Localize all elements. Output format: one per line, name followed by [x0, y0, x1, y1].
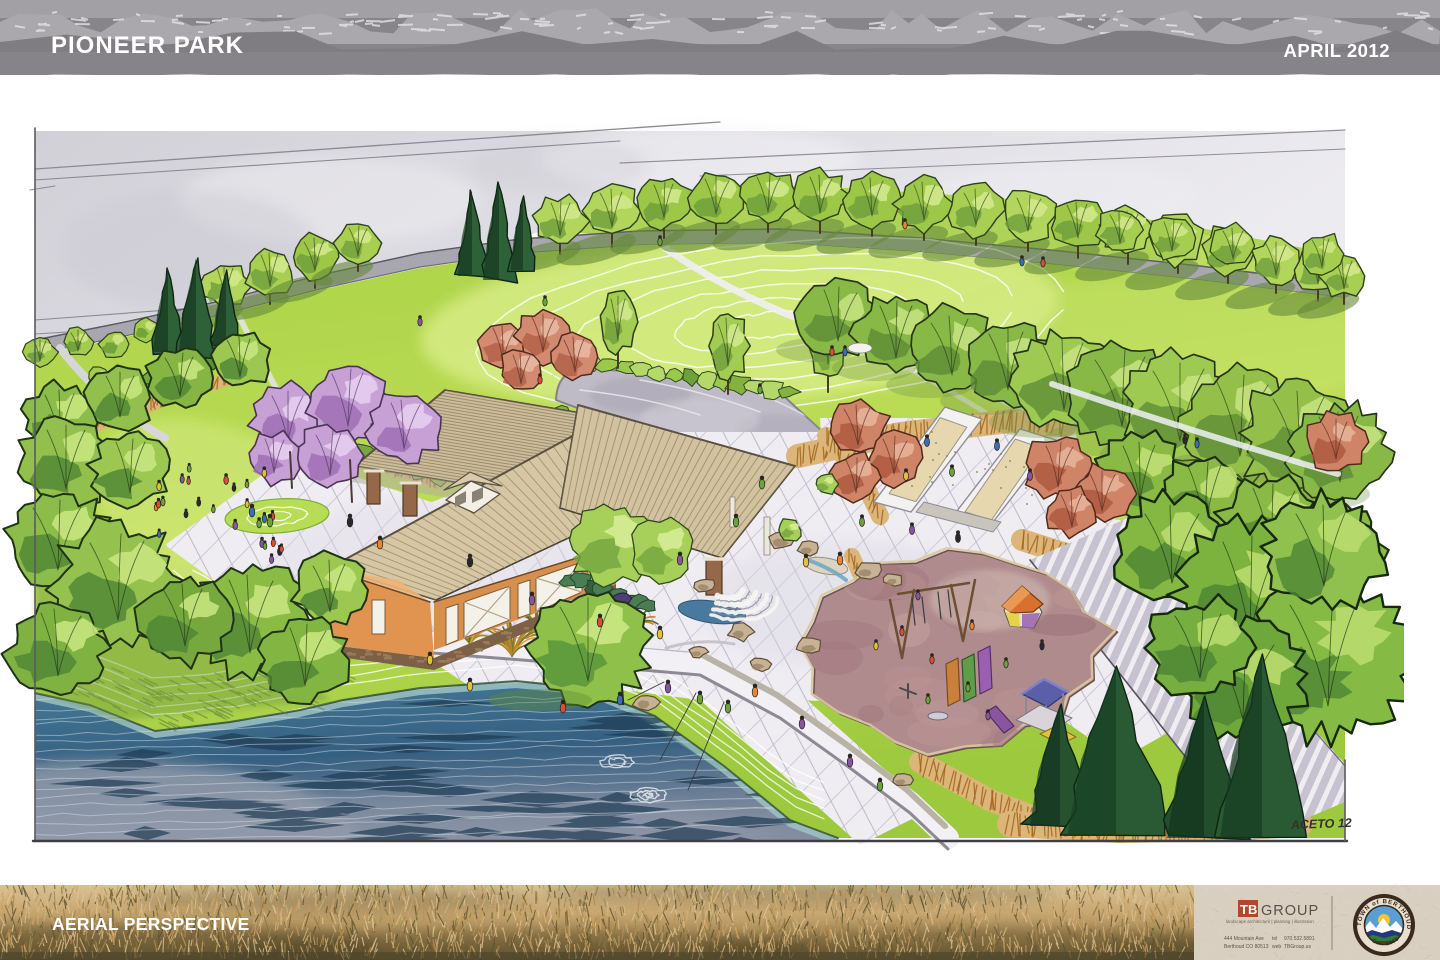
svg-text:GROUP: GROUP	[1261, 903, 1319, 919]
svg-text:web: web	[1272, 944, 1281, 950]
svg-text:444 Mountain Ave: 444 Mountain Ave	[1224, 936, 1264, 942]
svg-text:970.532.5891: 970.532.5891	[1284, 936, 1315, 942]
svg-text:TB: TB	[1240, 902, 1257, 917]
svg-text:ACETO 12: ACETO 12	[1290, 816, 1352, 832]
svg-text:APRIL 2012: APRIL 2012	[1284, 40, 1390, 61]
svg-text:landscape architecture | plann: landscape architecture | planning | illu…	[1226, 919, 1314, 924]
svg-text:AERIAL PERSPECTIVE: AERIAL PERSPECTIVE	[52, 914, 250, 934]
svg-text:PIONEER PARK: PIONEER PARK	[51, 32, 244, 59]
svg-text:TBGroup.us: TBGroup.us	[1284, 944, 1311, 950]
svg-text:Berthoud CO 80513: Berthoud CO 80513	[1224, 944, 1269, 950]
svg-text:tel: tel	[1272, 936, 1277, 942]
